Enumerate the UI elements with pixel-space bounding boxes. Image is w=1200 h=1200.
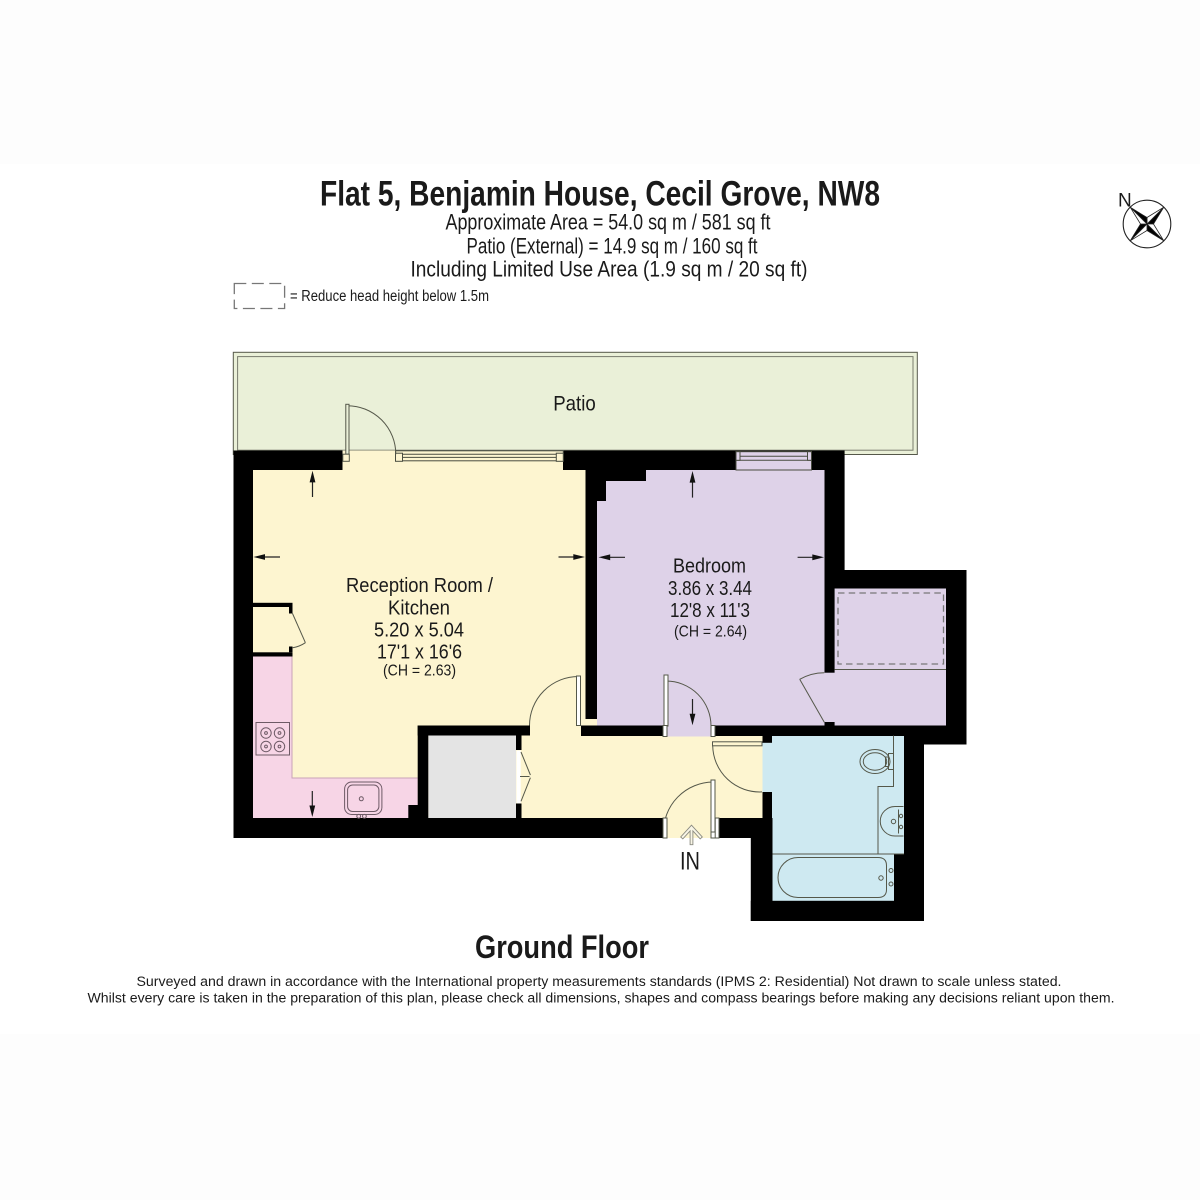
- svg-text:3.86 x 3.44: 3.86 x 3.44: [668, 578, 752, 600]
- svg-text:Bedroom: Bedroom: [673, 556, 746, 578]
- svg-text:Surveyed and drawn in accordan: Surveyed and drawn in accordance with th…: [137, 974, 1062, 989]
- svg-text:Approximate Area = 54.0 sq m /: Approximate Area = 54.0 sq m / 581 sq ft: [446, 210, 771, 235]
- svg-text:Whilst every care is taken in: Whilst every care is taken in the prepar…: [88, 991, 1115, 1006]
- svg-text:Flat 5, Benjamin House, Cecil: Flat 5, Benjamin House, Cecil Grove, NW8: [320, 175, 880, 214]
- svg-text:= Reduce head height below 1.5: = Reduce head height below 1.5m: [290, 288, 489, 305]
- svg-text:12'8 x 11'3: 12'8 x 11'3: [670, 600, 750, 622]
- svg-text:IN: IN: [680, 847, 700, 875]
- svg-text:17'1 x 16'6: 17'1 x 16'6: [377, 642, 462, 664]
- svg-text:Patio (External) = 14.9 sq m /: Patio (External) = 14.9 sq m / 160 sq ft: [467, 233, 758, 258]
- svg-text:Patio: Patio: [553, 392, 596, 415]
- svg-text:(CH = 2.64): (CH = 2.64): [674, 624, 747, 641]
- svg-text:Ground Floor: Ground Floor: [475, 929, 649, 965]
- svg-text:(CH = 2.63): (CH = 2.63): [383, 663, 456, 680]
- svg-text:5.20 x 5.04: 5.20 x 5.04: [374, 620, 464, 642]
- svg-text:Including Limited Use Area (1.: Including Limited Use Area (1.9 sq m / 2…: [411, 256, 808, 281]
- svg-text:N: N: [1118, 191, 1132, 212]
- svg-text:Reception Room /: Reception Room /: [346, 575, 493, 597]
- svg-text:Kitchen: Kitchen: [388, 598, 450, 620]
